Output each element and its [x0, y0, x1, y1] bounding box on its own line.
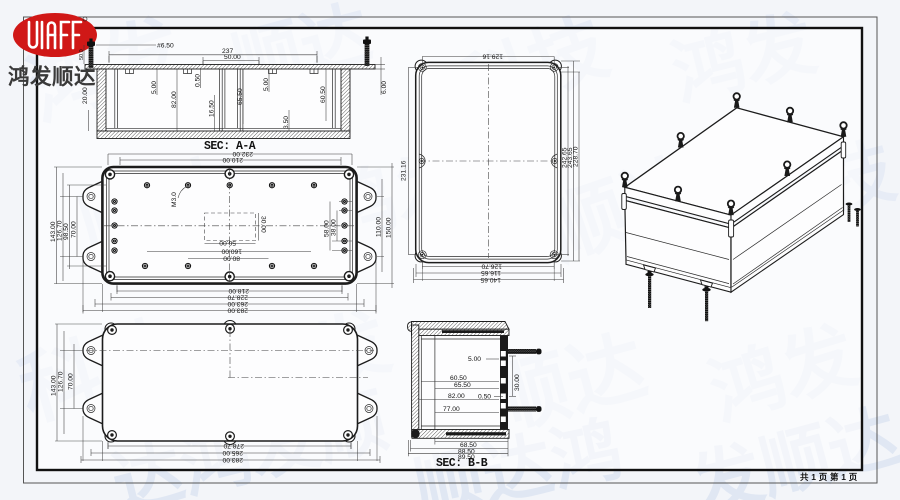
svg-text:#6.50: #6.50 [157, 43, 174, 50]
svg-text:50.0: 50.0 [79, 49, 85, 60]
svg-text:M3.0: M3.0 [171, 192, 178, 207]
svg-text:150.00: 150.00 [386, 217, 393, 238]
svg-text:82.00: 82.00 [171, 91, 178, 108]
svg-text:70.00: 70.00 [68, 373, 75, 390]
svg-text:140.65: 140.65 [480, 276, 501, 283]
svg-text:30.00: 30.00 [514, 374, 521, 391]
svg-text:265.00: 265.00 [222, 449, 243, 456]
svg-text:50.00: 50.00 [219, 239, 236, 246]
svg-text:82.00: 82.00 [448, 393, 465, 400]
svg-text:210.00: 210.00 [222, 156, 243, 163]
svg-text:3.50: 3.50 [283, 116, 290, 129]
svg-text:5.00: 5.00 [151, 81, 158, 94]
svg-text:0.50: 0.50 [195, 74, 202, 87]
svg-text:80.00: 80.00 [223, 254, 240, 261]
svg-text:129.16: 129.16 [482, 52, 503, 59]
svg-text:218.00: 218.00 [228, 287, 249, 294]
svg-text:231.16: 231.16 [401, 160, 408, 181]
svg-text:38.00: 38.00 [331, 219, 338, 236]
svg-text:共 1 页 第 1 页: 共 1 页 第 1 页 [800, 472, 858, 482]
svg-text:160.00: 160.00 [221, 247, 242, 254]
svg-text:58.00: 58.00 [324, 220, 331, 237]
svg-text:126.70: 126.70 [58, 371, 65, 392]
svg-text:283.00: 283.00 [222, 456, 243, 463]
svg-text:116.65: 116.65 [481, 269, 501, 276]
svg-text:232.00: 232.00 [232, 150, 253, 157]
svg-text:6.00: 6.00 [381, 81, 388, 94]
svg-text:30.00: 30.00 [260, 216, 267, 233]
svg-text:98.50: 98.50 [63, 223, 70, 240]
svg-text:143.00: 143.00 [51, 375, 58, 396]
svg-text:278.70: 278.70 [223, 442, 244, 449]
svg-text:60.50: 60.50 [320, 86, 327, 103]
svg-text:228.70: 228.70 [227, 294, 248, 301]
svg-text:126.70: 126.70 [481, 263, 502, 270]
svg-text:70.00: 70.00 [71, 221, 78, 238]
svg-text:65.50: 65.50 [237, 88, 244, 105]
svg-text:鸿发顺达: 鸿发顺达 [8, 64, 96, 89]
svg-text:263.00: 263.00 [227, 300, 248, 307]
svg-text:SEC: B-B: SEC: B-B [436, 457, 488, 470]
svg-text:50.00: 50.00 [224, 54, 241, 61]
svg-text:5.00: 5.00 [263, 78, 270, 91]
svg-text:20.00: 20.00 [82, 87, 89, 104]
svg-text:228.70: 228.70 [573, 146, 580, 167]
svg-text:65.50: 65.50 [454, 382, 471, 389]
svg-text:60.50: 60.50 [450, 375, 467, 382]
svg-text:283.00: 283.00 [227, 307, 248, 314]
svg-text:77.00: 77.00 [443, 406, 460, 413]
svg-text:5.00: 5.00 [468, 356, 481, 363]
svg-text:110.00: 110.00 [376, 217, 383, 237]
svg-text:16.50: 16.50 [209, 100, 216, 117]
